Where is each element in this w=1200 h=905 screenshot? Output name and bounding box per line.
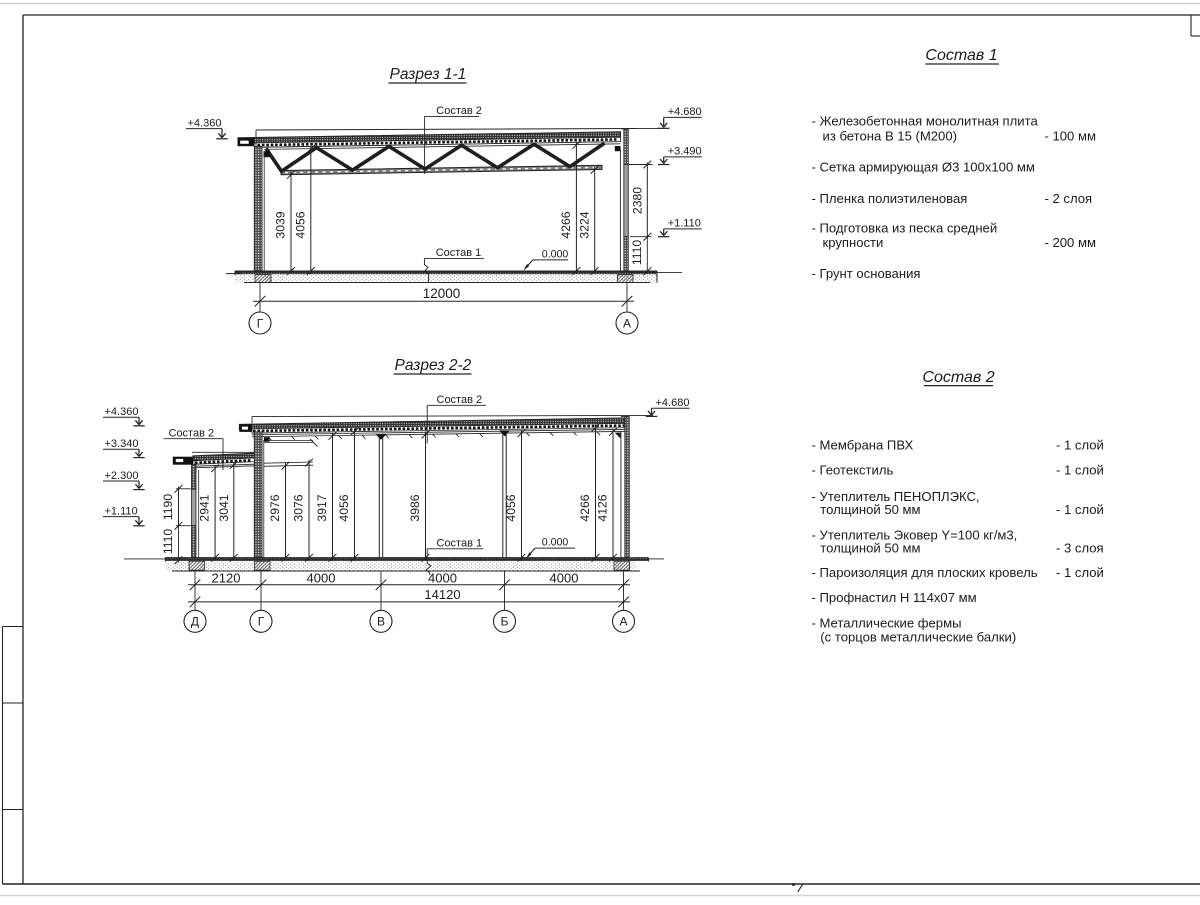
svg-text:- 3 слоя: - 3 слоя (1056, 540, 1104, 555)
svg-text:толщиной 50 мм: толщиной 50 мм (820, 540, 920, 555)
svg-text:1110: 1110 (630, 240, 644, 266)
svg-text:2941: 2941 (197, 494, 211, 521)
svg-text:- Металлические фермы: - Металлические фермы (812, 616, 962, 631)
svg-text:4056: 4056 (504, 494, 518, 521)
svg-text:Состав 2: Состав 2 (922, 369, 994, 386)
svg-text:14120: 14120 (424, 587, 460, 602)
svg-text:12000: 12000 (423, 286, 461, 301)
svg-text:+2.300: +2.300 (105, 470, 139, 482)
svg-text:4266: 4266 (559, 211, 573, 238)
svg-text:+3.490: +3.490 (668, 146, 702, 158)
svg-text:4056: 4056 (294, 211, 308, 238)
svg-text:+4.360: +4.360 (188, 117, 222, 129)
svg-text:- 2 слоя: - 2 слоя (1045, 191, 1093, 206)
svg-text:+4.680: +4.680 (656, 397, 690, 409)
svg-text:- Железобетонная монолитная п: - Железобетонная монолитная плита (812, 113, 1039, 128)
svg-text:Состав 1: Состав 1 (436, 247, 482, 259)
svg-text:Разрез 2-2: Разрез 2-2 (395, 357, 472, 374)
svg-text:В: В (377, 615, 385, 629)
svg-text:2976: 2976 (268, 494, 282, 521)
svg-text:+4.680: +4.680 (668, 106, 702, 118)
svg-text:Состав 1: Состав 1 (925, 47, 997, 64)
svg-text:4000: 4000 (307, 570, 336, 585)
svg-text:Состав 2: Состав 2 (169, 428, 215, 440)
svg-text:- 1 слой: - 1 слой (1056, 565, 1104, 580)
svg-text:- Мембрана ПВХ: - Мембрана ПВХ (812, 438, 914, 453)
svg-text:- 1 слой: - 1 слой (1056, 463, 1104, 478)
svg-text:- Геотекстиль: - Геотекстиль (812, 463, 894, 478)
svg-text:- Профнастил Н 114х07 мм: - Профнастил Н 114х07 мм (812, 590, 977, 605)
svg-text:Состав 2: Состав 2 (437, 394, 483, 406)
svg-text:3041: 3041 (217, 494, 231, 521)
svg-text:- 1 слой: - 1 слой (1056, 438, 1104, 453)
svg-text:4000: 4000 (428, 570, 457, 585)
svg-text:- Сетка армирующая Ø3 100х100: - Сетка армирующая Ø3 100х100 мм (812, 160, 1035, 175)
svg-text:крупности: крупности (823, 235, 884, 250)
svg-text:3224: 3224 (578, 211, 592, 238)
svg-text:4000: 4000 (550, 570, 579, 585)
svg-text:2380: 2380 (630, 187, 644, 214)
svg-text:- 200 мм: - 200 мм (1045, 235, 1097, 250)
svg-text:+1.110: +1.110 (668, 218, 701, 230)
svg-text:3917: 3917 (315, 494, 329, 521)
svg-text:из бетона В 15 (М200): из бетона В 15 (М200) (823, 129, 958, 144)
svg-text:- Грунт основания: - Грунт основания (812, 266, 921, 281)
svg-text:- Пароизоляция для плоских кро: - Пароизоляция для плоских кровель (812, 565, 1038, 580)
svg-text:(с торцов металлические балки): (с торцов металлические балки) (820, 629, 1016, 644)
svg-text:Б: Б (501, 615, 509, 629)
svg-text:А: А (623, 316, 631, 330)
svg-text:3986: 3986 (408, 494, 422, 521)
svg-text:+3.340: +3.340 (105, 438, 139, 450)
svg-text:2120: 2120 (212, 570, 241, 585)
svg-text:- 100 мм: - 100 мм (1045, 129, 1097, 144)
svg-text:0.000: 0.000 (542, 537, 569, 549)
svg-text:Д: Д (191, 615, 199, 629)
svg-text:1190: 1190 (161, 494, 175, 520)
svg-text:1110: 1110 (161, 529, 175, 555)
svg-text:толщиной 50 мм: толщиной 50 мм (820, 502, 920, 517)
svg-text:Г: Г (258, 615, 265, 629)
svg-text:Состав 1: Состав 1 (437, 538, 483, 550)
svg-text:+1.110: +1.110 (105, 505, 138, 517)
svg-text:Разрез 1-1: Разрез 1-1 (390, 66, 467, 83)
svg-text:А: А (619, 615, 627, 629)
svg-text:4266: 4266 (578, 494, 592, 521)
svg-text:3039: 3039 (274, 211, 288, 238)
svg-text:3076: 3076 (292, 494, 306, 521)
svg-text:4056: 4056 (337, 494, 351, 521)
svg-text:- Пленка полиэтиленовая: - Пленка полиэтиленовая (812, 191, 968, 206)
svg-text:- Подготовка из песка средней: - Подготовка из песка средней (812, 221, 998, 236)
svg-text:+4.360: +4.360 (105, 406, 139, 418)
svg-text:Г: Г (257, 316, 264, 330)
svg-text:4126: 4126 (596, 494, 610, 521)
svg-text:0.000: 0.000 (542, 248, 569, 260)
svg-text:- 1 слой: - 1 слой (1056, 502, 1104, 517)
svg-text:Состав 2: Состав 2 (436, 105, 482, 117)
